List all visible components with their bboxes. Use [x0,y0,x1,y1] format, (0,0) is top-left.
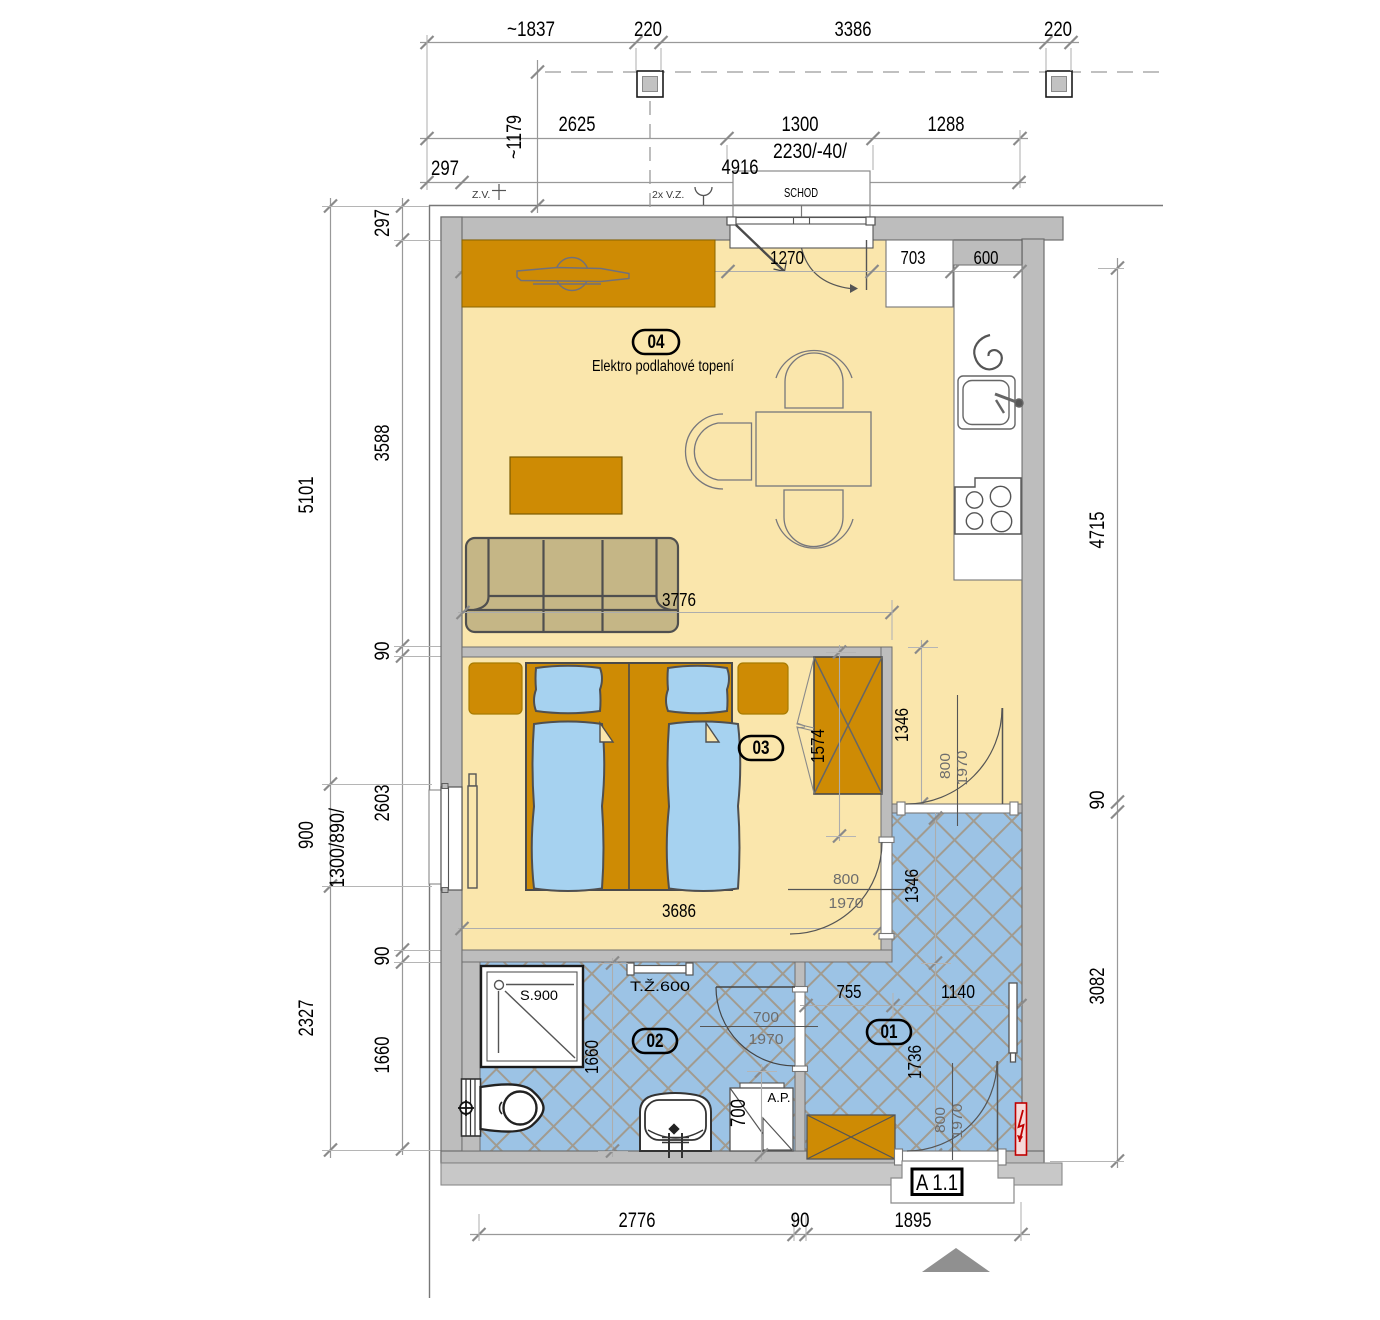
svg-text:1970: 1970 [954,751,971,786]
svg-text:2230/-40/: 2230/-40/ [773,140,847,163]
svg-text:1736: 1736 [904,1045,925,1079]
svg-text:4916: 4916 [722,156,759,179]
svg-text:1574: 1574 [807,729,828,763]
svg-text:5101: 5101 [295,477,318,514]
svg-text:3776: 3776 [662,589,696,610]
svg-text:SCHOD: SCHOD [784,185,818,200]
svg-text:01: 01 [881,1022,898,1043]
svg-text:1660: 1660 [371,1037,394,1074]
svg-text:800: 800 [833,871,859,888]
svg-text:1895: 1895 [895,1209,932,1232]
svg-text:3686: 3686 [662,900,696,921]
svg-text:90: 90 [371,947,394,966]
svg-text:1970: 1970 [749,1031,784,1048]
svg-text:220: 220 [1044,18,1072,41]
svg-text:297: 297 [431,157,459,180]
svg-text:3082: 3082 [1086,968,1109,1005]
svg-text:220: 220 [634,18,662,41]
svg-text:~1179: ~1179 [503,115,526,159]
svg-text:800: 800 [937,753,954,779]
svg-text:02: 02 [647,1031,664,1052]
svg-text:1288: 1288 [928,113,965,136]
svg-text:1346: 1346 [891,708,912,742]
svg-text:755: 755 [837,981,862,1002]
svg-text:A 1.1: A 1.1 [916,1170,958,1195]
svg-text:90: 90 [791,1209,810,1232]
svg-text:~1837: ~1837 [507,18,555,41]
svg-text:03: 03 [753,738,770,759]
svg-text:Elektro podlahové topení: Elektro podlahové topení [592,358,735,375]
svg-text:900: 900 [295,821,318,849]
svg-text:2776: 2776 [619,1209,656,1232]
svg-text:600: 600 [974,247,999,268]
svg-text:1300: 1300 [782,113,819,136]
svg-text:T.Ž.600: T.Ž.600 [630,978,690,994]
svg-text:2327: 2327 [295,1000,318,1037]
svg-text:703: 703 [901,247,926,268]
svg-text:2x V.Z.: 2x V.Z. [652,189,684,201]
svg-text:1660: 1660 [581,1040,602,1074]
svg-text:1970: 1970 [829,895,864,912]
svg-text:2603: 2603 [371,785,394,822]
svg-text:1300/890/: 1300/890/ [326,808,349,888]
svg-text:3588: 3588 [371,425,394,462]
svg-text:297: 297 [371,209,394,237]
svg-text:1970: 1970 [949,1104,966,1139]
svg-text:90: 90 [371,642,394,661]
svg-text:4715: 4715 [1086,512,1109,549]
svg-text:S.900: S.900 [520,987,558,1003]
svg-text:A.P.: A.P. [768,1090,791,1105]
svg-text:700: 700 [727,1099,750,1127]
svg-text:1140: 1140 [941,981,975,1002]
svg-text:04: 04 [648,332,665,353]
svg-text:Z.V.: Z.V. [472,189,490,201]
svg-text:1346: 1346 [901,869,922,903]
svg-text:700: 700 [753,1009,779,1026]
svg-text:90: 90 [1086,791,1109,810]
svg-text:1270: 1270 [770,247,804,268]
svg-text:800: 800 [932,1107,949,1133]
svg-text:3386: 3386 [835,18,872,41]
svg-text:2625: 2625 [559,113,596,136]
